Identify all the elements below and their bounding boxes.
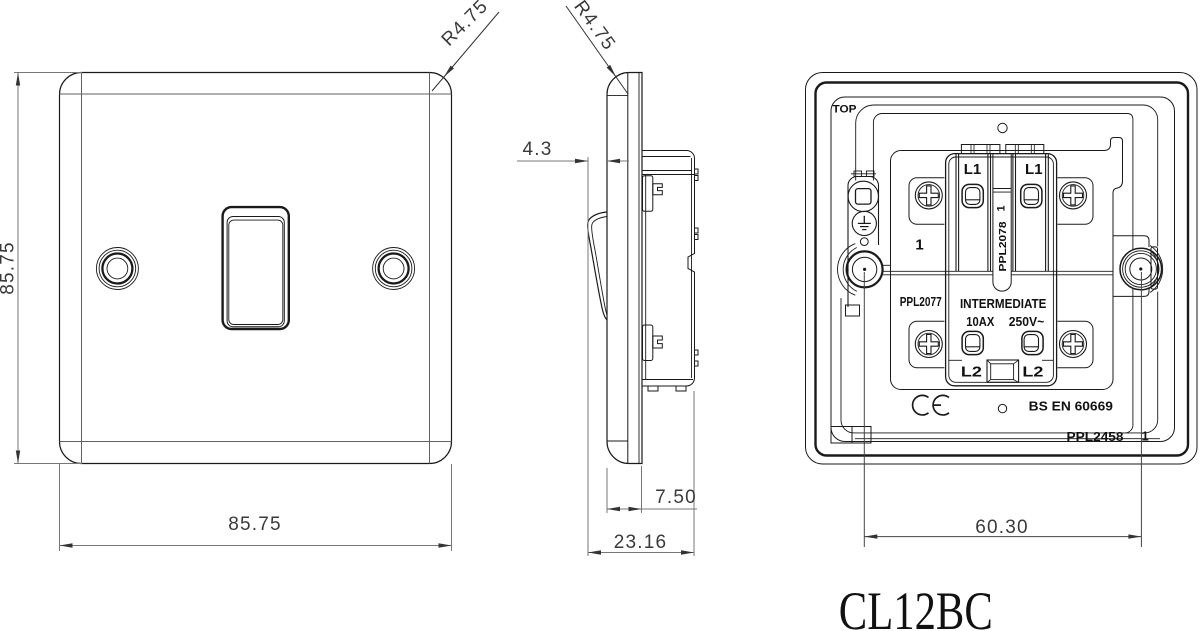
svg-text:L2: L2	[1022, 365, 1043, 381]
svg-text:85.75: 85.75	[228, 514, 282, 535]
svg-text:7.50: 7.50	[655, 487, 697, 508]
svg-text:L1: L1	[964, 162, 982, 178]
svg-text:23.16: 23.16	[614, 532, 668, 553]
svg-text:L1: L1	[1025, 162, 1043, 178]
svg-text:10AX: 10AX	[966, 314, 994, 329]
svg-text:L2: L2	[961, 365, 982, 381]
svg-text:1: 1	[996, 205, 1008, 211]
svg-text:250V~: 250V~	[1009, 314, 1045, 329]
svg-text:INTERMEDIATE: INTERMEDIATE	[960, 296, 1047, 311]
svg-text:60.30: 60.30	[975, 517, 1029, 538]
svg-text:PPL2077: PPL2077	[900, 294, 942, 309]
svg-text:85.75: 85.75	[0, 241, 19, 295]
svg-text:PPL2458: PPL2458	[1067, 429, 1124, 444]
svg-text:CL12BC: CL12BC	[839, 581, 993, 631]
svg-text:TOP: TOP	[833, 104, 857, 116]
svg-text:BS EN 60669: BS EN 60669	[1029, 398, 1113, 413]
svg-text:1: 1	[915, 237, 923, 254]
svg-text:PPL2078: PPL2078	[998, 221, 1009, 272]
svg-text:4.3: 4.3	[522, 139, 552, 160]
svg-text:1: 1	[1142, 428, 1149, 443]
